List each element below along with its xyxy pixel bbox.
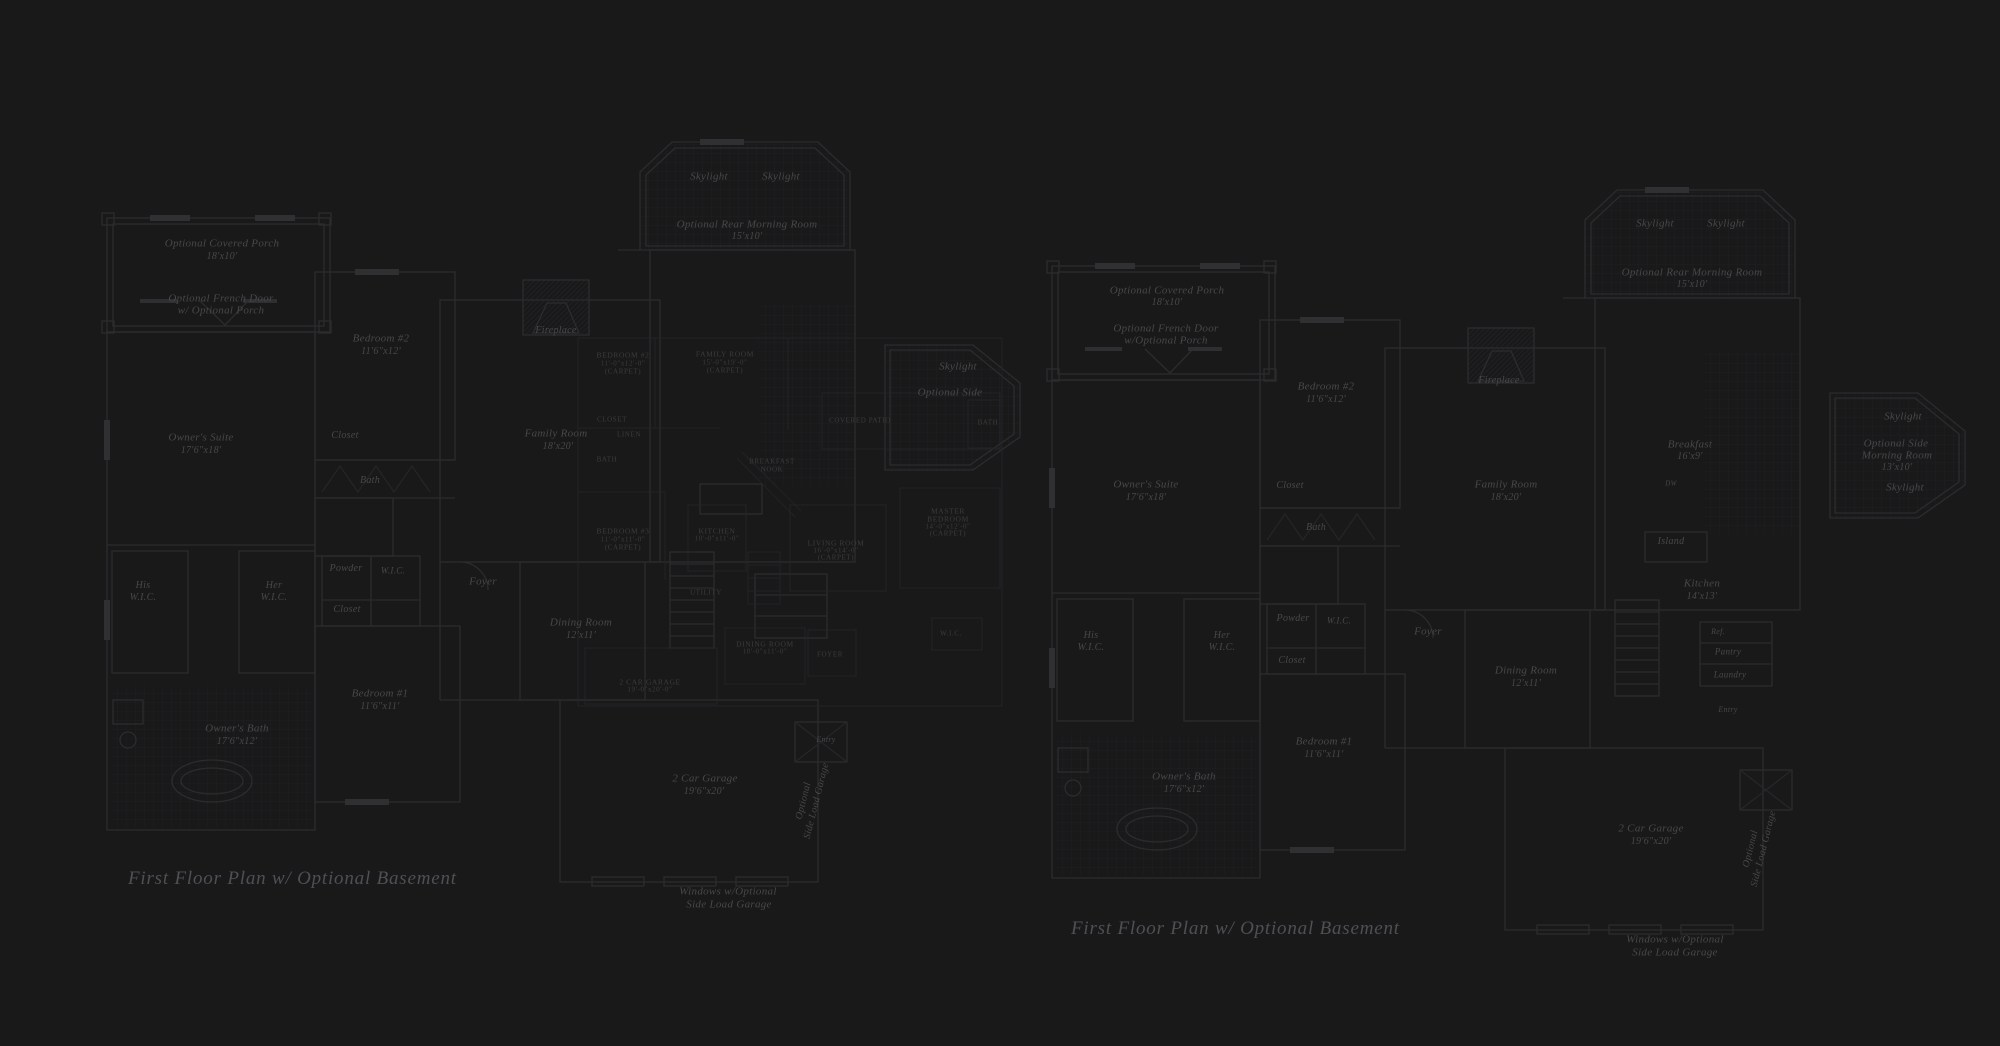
floorplan-right-linework	[1047, 187, 1965, 934]
floorplan-sheet: Optional Covered Porch18'x10'Optional Fr…	[0, 0, 2000, 1046]
plan-caption-left: First Floor Plan w/ Optional Basement	[128, 868, 457, 890]
plan-caption-right: First Floor Plan w/ Optional Basement	[1071, 918, 1400, 940]
floorplan-left-linework	[102, 139, 1020, 886]
